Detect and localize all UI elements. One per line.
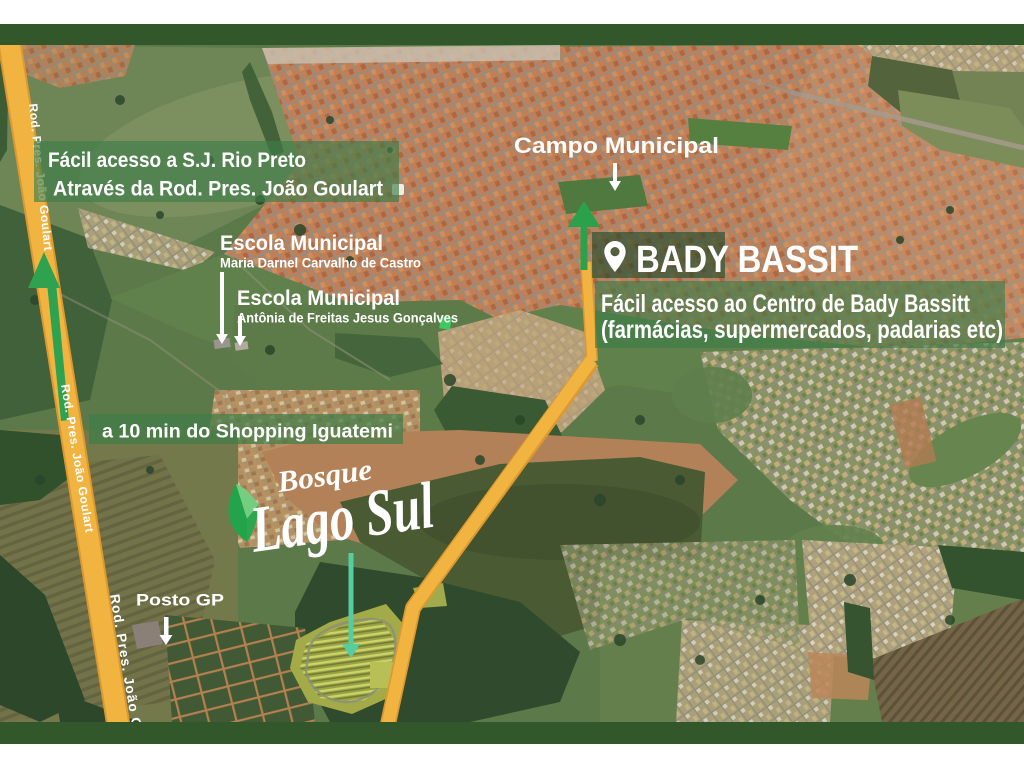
svg-text:Antônia de Freitas Jesus Gonça: Antônia de Freitas Jesus Gonçalves: [237, 311, 458, 326]
svg-text:Campo Municipal: Campo Municipal: [514, 133, 719, 158]
svg-text:Posto GP: Posto GP: [136, 592, 224, 610]
svg-text:Escola Municipal: Escola Municipal: [220, 232, 383, 255]
svg-text:(farmácias, supermercados, pad: (farmácias, supermercados, padarias etc): [601, 316, 1003, 344]
svg-text:Maria Darnel Carvalho de Castr: Maria Darnel Carvalho de Castro: [220, 256, 421, 271]
svg-text:Através da Rod. Pres. João Gou: Através da Rod. Pres. João Goulart: [53, 178, 383, 201]
svg-text:Escola Municipal: Escola Municipal: [237, 287, 400, 310]
svg-text:Fácil acesso ao Centro de Bady: Fácil acesso ao Centro de Bady Bassitt: [601, 290, 971, 318]
svg-text:a 10 min do Shopping Iguatemi: a 10 min do Shopping Iguatemi: [102, 422, 393, 443]
svg-text:BADY BASSIT: BADY BASSIT: [636, 239, 858, 281]
svg-text:Fácil acesso a S.J. Rio Preto: Fácil acesso a S.J. Rio Preto: [48, 149, 306, 172]
